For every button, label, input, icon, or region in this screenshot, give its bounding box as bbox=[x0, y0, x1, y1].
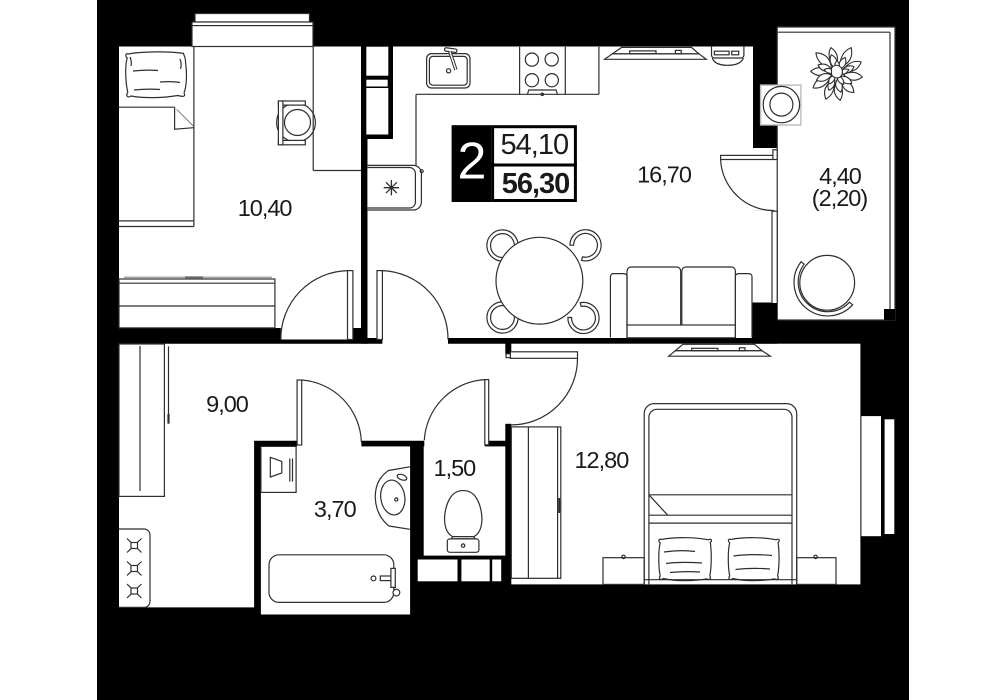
svg-text:1,50: 1,50 bbox=[434, 455, 477, 481]
svg-text:9,00: 9,00 bbox=[206, 391, 249, 417]
svg-text:54,10: 54,10 bbox=[501, 129, 569, 161]
svg-text:(2,20): (2,20) bbox=[812, 185, 868, 211]
svg-text:12,80: 12,80 bbox=[574, 447, 629, 473]
svg-text:10,40: 10,40 bbox=[238, 195, 293, 221]
svg-text:3,70: 3,70 bbox=[314, 496, 357, 522]
svg-text:56,30: 56,30 bbox=[502, 168, 570, 200]
svg-text:2: 2 bbox=[458, 133, 486, 191]
svg-text:16,70: 16,70 bbox=[637, 162, 692, 188]
